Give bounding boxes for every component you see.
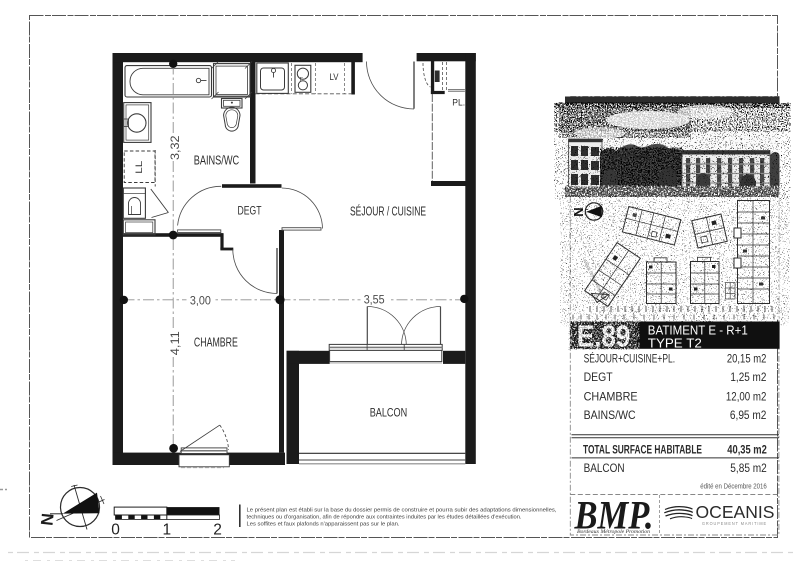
svg-text:CHAMBRE: CHAMBRE [194, 335, 238, 350]
svg-text:Le présent plan est établi sur: Le présent plan est établi sur la base d… [247, 508, 557, 514]
svg-text:Les soffites et faux plafonds: Les soffites et faux plafonds n'apparais… [247, 522, 400, 528]
svg-text:3,55: 3,55 [364, 295, 385, 307]
svg-text:4,11: 4,11 [170, 331, 182, 355]
svg-text:20,15 m2: 20,15 m2 [727, 352, 767, 366]
svg-text:N: N [571, 207, 586, 216]
svg-text:1: 1 [162, 522, 171, 539]
svg-text:BALCON: BALCON [584, 461, 625, 475]
svg-text:40,35 m2: 40,35 m2 [727, 442, 767, 456]
svg-text:BAINS/WC: BAINS/WC [584, 408, 636, 422]
svg-text:N: N [37, 512, 57, 526]
svg-text:DEGT: DEGT [584, 370, 614, 384]
svg-text:CHAMBRE: CHAMBRE [584, 390, 638, 404]
svg-text:SÉJOUR+CUISINE+PL.: SÉJOUR+CUISINE+PL. [584, 351, 676, 366]
svg-text:BAINS/WC: BAINS/WC [194, 152, 240, 167]
svg-text:TYPE T2: TYPE T2 [648, 337, 702, 351]
svg-text:LL: LL [134, 161, 144, 174]
svg-text:OCEANIS: OCEANIS [696, 502, 775, 522]
svg-text:3,00: 3,00 [190, 296, 211, 308]
svg-text:TOTAL SURFACE HABITABLE: TOTAL SURFACE HABITABLE [583, 442, 702, 456]
svg-text:12,00 m2: 12,00 m2 [726, 390, 767, 404]
svg-text:0: 0 [111, 522, 120, 539]
svg-text:PL.: PL. [452, 97, 465, 108]
svg-text:SÉJOUR / CUISINE: SÉJOUR / CUISINE [350, 203, 426, 218]
svg-text:5,85 m2: 5,85 m2 [730, 461, 767, 475]
svg-text:BATIMENT E - R+1: BATIMENT E - R+1 [648, 323, 748, 337]
svg-text:édité en Décembre 2016: édité en Décembre 2016 [700, 484, 767, 491]
svg-text:6,95 m2: 6,95 m2 [730, 408, 767, 422]
svg-text:3,32: 3,32 [170, 136, 182, 161]
svg-text:GROUPEMENT MARITIME: GROUPEMENT MARITIME [702, 521, 767, 526]
svg-text:1,25 m2: 1,25 m2 [730, 370, 766, 384]
svg-text:LV: LV [330, 72, 340, 83]
svg-text:techniques ou d'organisation,: techniques ou d'organisation, afin de ré… [247, 515, 522, 521]
svg-text:BALCON: BALCON [370, 407, 408, 419]
svg-text:Bordeaux Métropole Promotion: Bordeaux Métropole Promotion [577, 529, 650, 535]
svg-text:2: 2 [213, 522, 222, 539]
svg-text:DEGT: DEGT [238, 205, 262, 217]
